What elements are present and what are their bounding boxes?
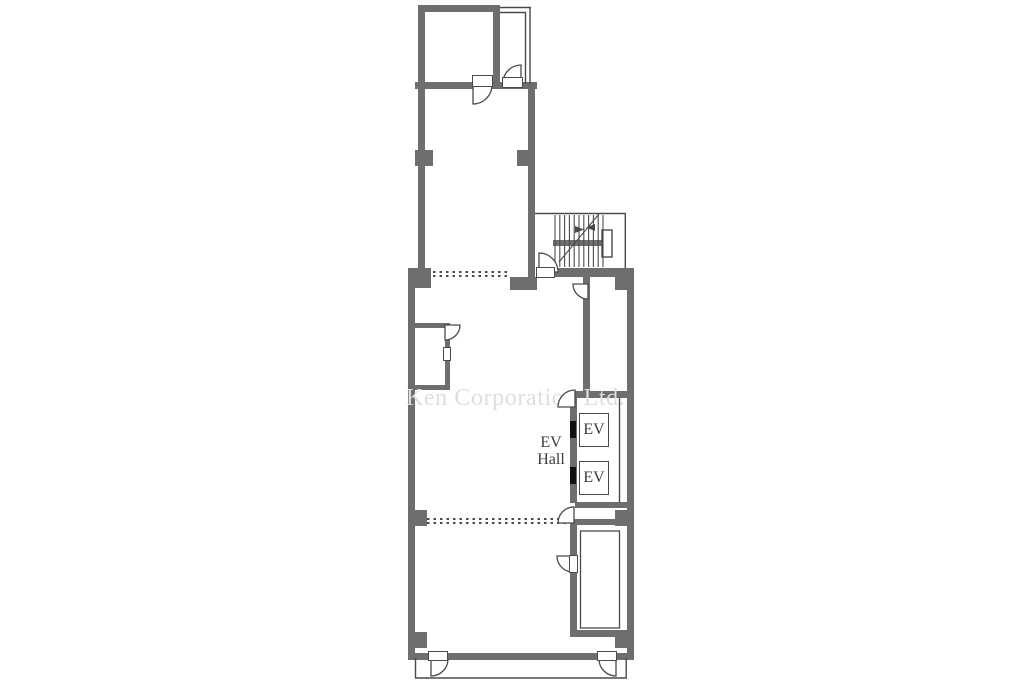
door-swing-icon <box>473 85 492 104</box>
doorway-notch <box>597 651 617 661</box>
ev-hall-label: EV Hall <box>528 435 574 468</box>
door-swing-icon <box>431 659 448 676</box>
door-swing-icon <box>558 390 575 407</box>
elevator-label: EV <box>583 469 604 487</box>
room-inner-outline <box>581 531 620 628</box>
door-swing-icon <box>599 659 616 676</box>
doorway-notch <box>536 267 555 278</box>
elevator-car: EV <box>579 461 609 495</box>
elevator-door-marker <box>570 467 576 484</box>
doorway-notch <box>569 555 578 573</box>
door-swing-icon <box>573 284 588 299</box>
closet-door-notch <box>443 347 451 361</box>
door-swing-icon <box>445 325 460 340</box>
plan-linework <box>0 0 1024 683</box>
doorway-notch <box>502 77 523 88</box>
doorway-notch <box>428 651 448 661</box>
doorway-notch <box>472 75 493 87</box>
elevator-label: EV <box>583 421 604 439</box>
elevator-car: EV <box>579 413 609 447</box>
floor-plan: Ken Corporation Ltd. <box>0 0 1024 683</box>
door-swing-icon <box>558 507 574 523</box>
